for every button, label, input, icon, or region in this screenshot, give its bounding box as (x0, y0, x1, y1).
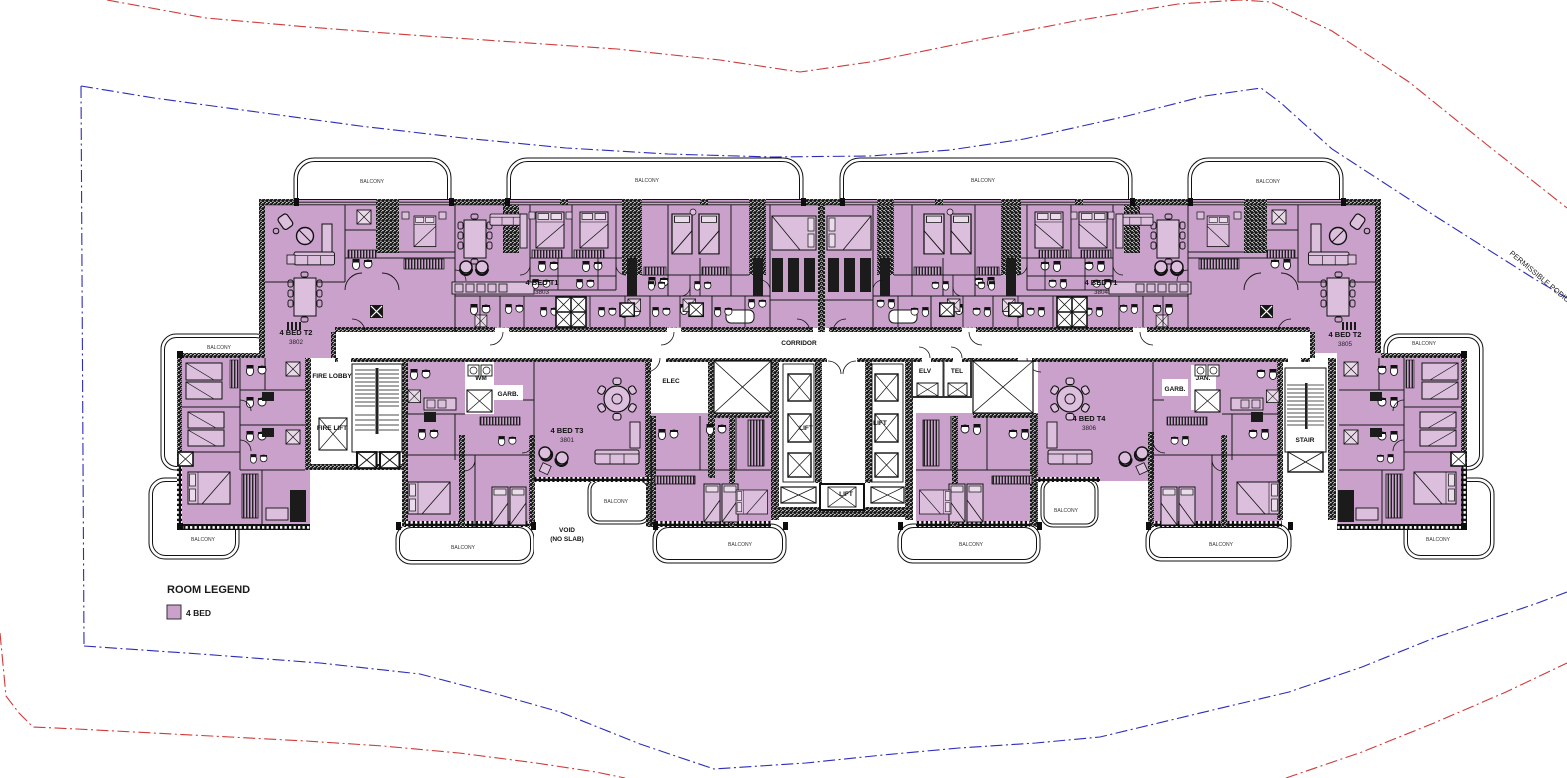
svg-text:VOID: VOID (559, 527, 575, 534)
svg-text:GARB.: GARB. (498, 391, 519, 398)
svg-text:BALCONY: BALCONY (1256, 179, 1281, 185)
svg-text:LIFT: LIFT (873, 420, 887, 427)
svg-text:TEL: TEL (951, 368, 963, 375)
svg-text:BALCONY: BALCONY (604, 499, 629, 505)
svg-text:CORRIDOR: CORRIDOR (781, 340, 817, 347)
svg-text:3805: 3805 (1338, 341, 1353, 348)
svg-text:3806: 3806 (1082, 425, 1097, 432)
svg-text:BALCONY: BALCONY (1426, 537, 1451, 543)
svg-text:LIFT: LIFT (799, 425, 813, 432)
svg-text:BALCONY: BALCONY (959, 542, 984, 548)
svg-text:WM: WM (475, 375, 487, 382)
svg-text:4 BED T1: 4 BED T1 (1085, 278, 1118, 287)
svg-text:BALCONY: BALCONY (207, 345, 232, 351)
svg-text:FIRE LOBBY: FIRE LOBBY (312, 373, 352, 380)
svg-text:BALCONY: BALCONY (728, 542, 753, 548)
svg-text:BALCONY: BALCONY (635, 178, 660, 184)
svg-text:4 BED: 4 BED (186, 608, 211, 618)
svg-text:STAIR: STAIR (1295, 437, 1314, 444)
svg-text:BALCONY: BALCONY (191, 537, 216, 543)
svg-text:4 BED T4: 4 BED T4 (1073, 414, 1107, 423)
svg-text:BALCONY: BALCONY (360, 179, 385, 185)
svg-text:BALCONY: BALCONY (1412, 341, 1437, 347)
svg-text:BALCONY: BALCONY (451, 545, 476, 551)
svg-text:BALCONY: BALCONY (1209, 542, 1234, 548)
svg-text:3801: 3801 (560, 437, 575, 444)
svg-text:ELV: ELV (919, 368, 932, 375)
svg-text:(NO SLAB): (NO SLAB) (550, 536, 584, 543)
svg-text:JAN.: JAN. (1196, 375, 1211, 382)
svg-text:ELEC: ELEC (662, 378, 680, 385)
svg-text:3804: 3804 (1094, 289, 1109, 296)
svg-text:4 BED T1: 4 BED T1 (526, 278, 559, 287)
svg-text:ROOM LEGEND: ROOM LEGEND (167, 584, 250, 596)
svg-text:GARB.: GARB. (1165, 386, 1186, 393)
svg-text:4 BED T2: 4 BED T2 (1329, 330, 1362, 339)
svg-text:3802: 3802 (289, 339, 304, 346)
svg-text:LIFT: LIFT (839, 491, 853, 498)
svg-text:4 BED T3: 4 BED T3 (551, 426, 584, 435)
svg-text:BALCONY: BALCONY (971, 178, 996, 184)
svg-text:3803: 3803 (535, 289, 550, 296)
svg-text:BALCONY: BALCONY (1054, 508, 1079, 514)
svg-text:4 BED T2: 4 BED T2 (280, 328, 313, 337)
svg-text:FIRE LIFT: FIRE LIFT (317, 425, 347, 432)
